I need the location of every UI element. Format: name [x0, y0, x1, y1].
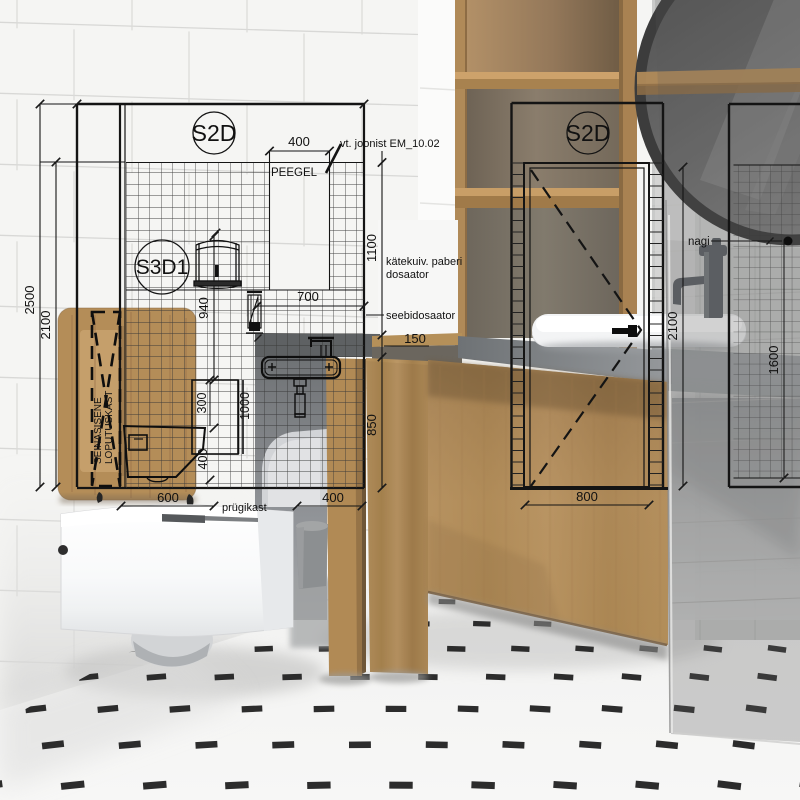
svg-text:S3D1: S3D1 — [136, 256, 189, 279]
svg-text:kätekuiv. paberi: kätekuiv. paberi — [386, 256, 462, 268]
svg-text:850: 850 — [364, 414, 379, 436]
svg-text:1000: 1000 — [238, 392, 252, 420]
svg-text:1100: 1100 — [364, 234, 379, 262]
svg-text:700: 700 — [297, 289, 319, 304]
svg-text:300: 300 — [195, 393, 209, 414]
svg-text:800: 800 — [576, 489, 598, 504]
svg-text:S2D: S2D — [192, 120, 237, 146]
svg-text:150: 150 — [404, 331, 426, 346]
svg-text:SEINASISENE: SEINASISENE — [93, 397, 104, 464]
svg-text:prügikast: prügikast — [222, 502, 267, 514]
svg-text:400: 400 — [196, 449, 210, 470]
svg-text:nagi: nagi — [688, 236, 710, 248]
svg-text:2500: 2500 — [22, 286, 37, 315]
svg-text:400: 400 — [322, 490, 344, 505]
svg-text:1600: 1600 — [766, 346, 781, 375]
svg-text:600: 600 — [157, 490, 179, 505]
svg-text:dosaator: dosaator — [386, 269, 429, 281]
svg-text:seebidosaator: seebidosaator — [386, 310, 455, 322]
svg-text:LOPUTUSKAST: LOPUTUSKAST — [104, 391, 115, 464]
svg-text:vt. joonist EM_10.02: vt. joonist EM_10.02 — [340, 138, 440, 150]
svg-text:940: 940 — [196, 297, 211, 319]
svg-text:2100: 2100 — [665, 312, 680, 341]
svg-text:2100: 2100 — [38, 311, 53, 340]
svg-text:S2D: S2D — [566, 120, 611, 146]
svg-text:PEEGEL: PEEGEL — [271, 167, 318, 179]
svg-text:400: 400 — [288, 134, 310, 149]
